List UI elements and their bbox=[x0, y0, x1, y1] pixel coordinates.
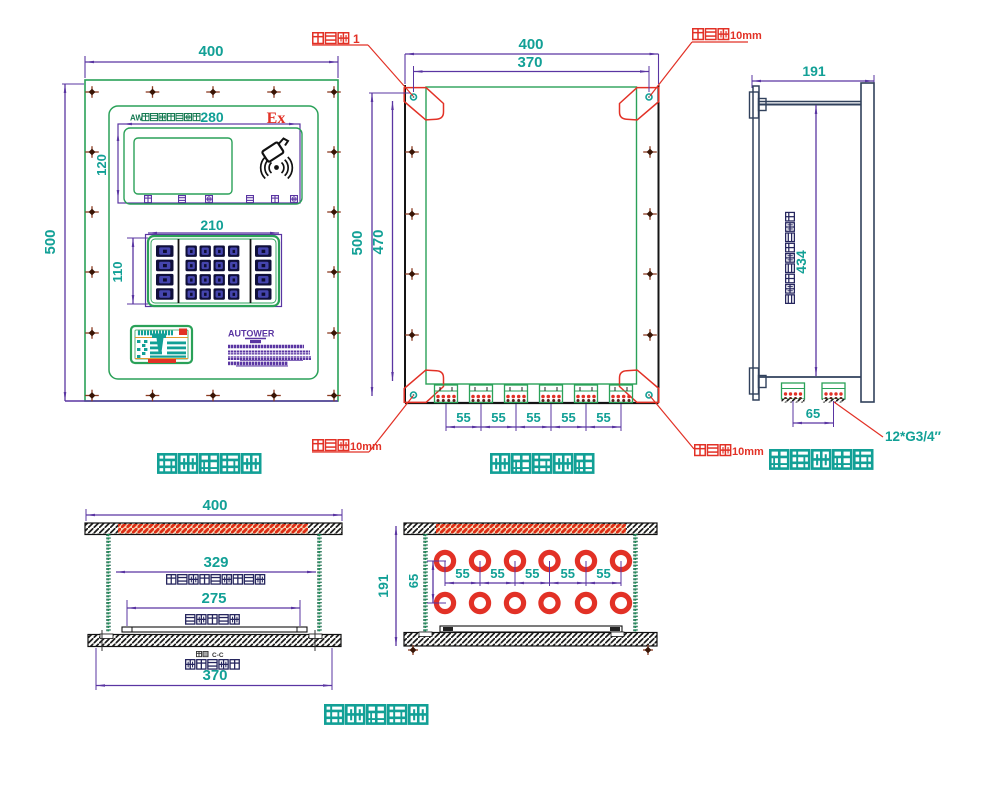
svg-text:329: 329 bbox=[203, 554, 228, 571]
svg-text:65: 65 bbox=[406, 574, 421, 588]
svg-text:110: 110 bbox=[110, 262, 125, 283]
svg-text:10mm: 10mm bbox=[730, 30, 762, 42]
svg-text:55: 55 bbox=[490, 566, 504, 581]
svg-text:55: 55 bbox=[596, 566, 610, 581]
svg-text:55: 55 bbox=[491, 410, 505, 425]
svg-text:370: 370 bbox=[517, 54, 542, 71]
svg-text:12*G3/4″: 12*G3/4″ bbox=[885, 429, 942, 444]
svg-text:1: 1 bbox=[353, 32, 360, 46]
svg-text:470: 470 bbox=[370, 229, 387, 254]
svg-text:191: 191 bbox=[375, 574, 391, 598]
svg-text:55: 55 bbox=[455, 566, 469, 581]
svg-text:280: 280 bbox=[200, 109, 224, 125]
svg-text:210: 210 bbox=[200, 217, 224, 233]
svg-text:55: 55 bbox=[596, 410, 610, 425]
svg-text:370: 370 bbox=[202, 667, 227, 684]
svg-text:65: 65 bbox=[806, 406, 820, 421]
svg-text:191: 191 bbox=[802, 63, 826, 79]
svg-text:400: 400 bbox=[198, 43, 223, 60]
svg-text:55: 55 bbox=[525, 566, 539, 581]
svg-text:400: 400 bbox=[202, 497, 227, 514]
svg-text:55: 55 bbox=[526, 410, 540, 425]
svg-text:AW: AW bbox=[130, 114, 143, 123]
svg-text:434: 434 bbox=[793, 250, 809, 274]
svg-text:AUTOWER: AUTOWER bbox=[228, 329, 275, 339]
svg-text:500: 500 bbox=[349, 230, 366, 255]
svg-text:500: 500 bbox=[42, 229, 59, 254]
svg-text:C-C: C-C bbox=[212, 652, 224, 659]
svg-text:55: 55 bbox=[561, 410, 575, 425]
svg-text:120: 120 bbox=[94, 154, 109, 176]
svg-text:55: 55 bbox=[561, 566, 575, 581]
svg-text:10mm: 10mm bbox=[732, 446, 764, 458]
svg-text:55: 55 bbox=[456, 410, 470, 425]
svg-text:10mm: 10mm bbox=[350, 441, 382, 453]
svg-text:275: 275 bbox=[201, 590, 226, 607]
svg-text:400: 400 bbox=[518, 36, 543, 53]
svg-text:Ex: Ex bbox=[267, 110, 286, 127]
